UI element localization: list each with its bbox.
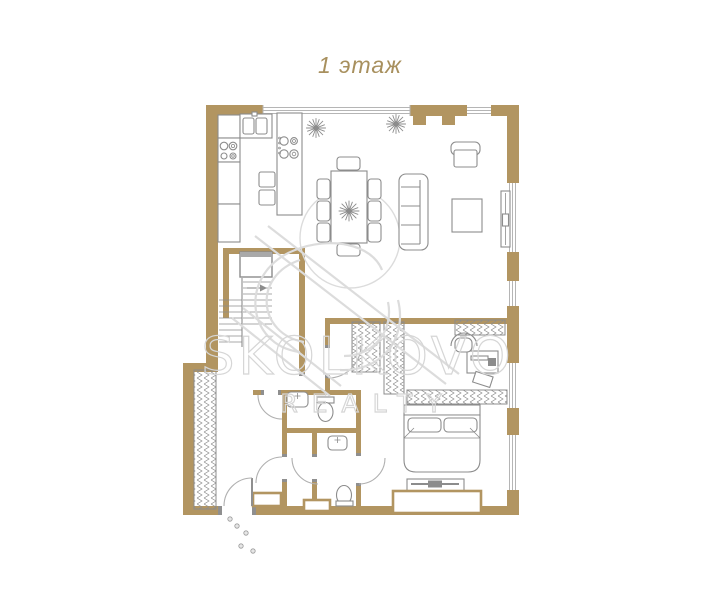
side-table xyxy=(452,199,482,232)
bathroom-door-swing xyxy=(258,395,282,419)
pillow xyxy=(408,418,441,432)
kitchen-counter xyxy=(218,115,240,138)
dining-chair xyxy=(368,223,381,242)
watermark-tagline: REALTY xyxy=(280,389,455,418)
armchair xyxy=(451,142,480,167)
dining-chair xyxy=(317,179,330,199)
plant-icons xyxy=(306,114,406,138)
kitchen xyxy=(218,112,302,242)
sink-bowl xyxy=(243,118,254,134)
floor-plan-drawing: SKOLKOVO REALTY xyxy=(0,0,720,600)
hall-wardrobe xyxy=(194,370,216,509)
bedroom xyxy=(393,405,481,513)
sink-bowl xyxy=(256,118,267,134)
dining-chair xyxy=(337,157,360,170)
bedroom-niche xyxy=(393,491,481,513)
wc-cabinet xyxy=(304,500,330,511)
entrance-door-swing xyxy=(224,478,252,506)
radiator xyxy=(501,191,510,247)
entrance-steps-dots xyxy=(228,517,255,553)
bar-stool xyxy=(259,190,275,205)
dining-set xyxy=(300,157,400,288)
dining-chair xyxy=(368,201,381,221)
cooktop xyxy=(218,138,240,162)
dining-chair xyxy=(317,223,330,242)
plant-icon xyxy=(306,118,326,138)
watermark-brand: SKOLKOVO xyxy=(201,327,514,387)
faucet-icon xyxy=(252,112,257,116)
toilet-tank xyxy=(336,501,353,506)
plant-icon xyxy=(386,114,406,134)
dining-chair xyxy=(368,179,381,199)
bar-stool xyxy=(259,172,275,187)
table-plant-icon xyxy=(339,201,360,222)
kitchen-island xyxy=(277,113,302,215)
sofa xyxy=(399,174,428,250)
corridor-door-swing xyxy=(256,457,282,483)
dining-chair xyxy=(317,201,330,221)
bedroom-door-swing xyxy=(359,458,385,484)
floor-plan-page: 1 этаж xyxy=(0,0,720,600)
hall-cabinet xyxy=(253,493,281,506)
